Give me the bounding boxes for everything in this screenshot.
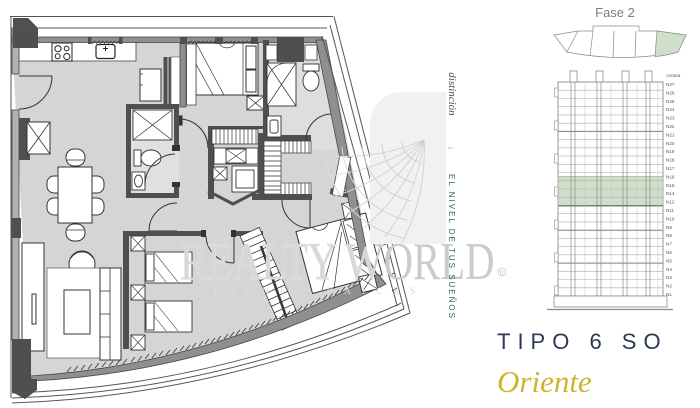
- svg-text:N22: N22: [666, 124, 675, 129]
- svg-text:N1: N1: [666, 292, 672, 297]
- svg-text:Azotea: Azotea: [666, 73, 681, 78]
- svg-text:N15: N15: [666, 183, 675, 188]
- svg-text:Oriente: Oriente: [497, 364, 592, 399]
- svg-text:N10: N10: [666, 216, 675, 221]
- svg-text:N14: N14: [666, 191, 675, 196]
- svg-text:N8: N8: [666, 233, 672, 238]
- svg-text:N6: N6: [666, 250, 672, 255]
- svg-text:N2: N2: [666, 284, 672, 289]
- svg-text:N19: N19: [666, 149, 675, 154]
- svg-text:N16: N16: [666, 174, 675, 179]
- svg-text:N5: N5: [666, 258, 672, 263]
- svg-text:N20: N20: [666, 141, 675, 146]
- svg-text:N17: N17: [666, 166, 675, 171]
- svg-text:N27: N27: [666, 82, 675, 87]
- svg-text:R: R: [500, 269, 505, 277]
- svg-text:¡: ¡: [447, 147, 456, 150]
- svg-text:N18: N18: [666, 158, 675, 163]
- svg-text:N21: N21: [666, 132, 675, 137]
- svg-text:distinción: distinción: [446, 72, 458, 116]
- svg-text:Fase 2: Fase 2: [595, 5, 635, 20]
- svg-text:N4: N4: [666, 267, 672, 272]
- svg-text:N3: N3: [666, 275, 672, 280]
- svg-text:N9: N9: [666, 225, 672, 230]
- svg-text:N7: N7: [666, 242, 672, 247]
- svg-text:N23: N23: [666, 116, 675, 121]
- svg-text:N11: N11: [666, 208, 675, 213]
- svg-text:TIPO 6 SO: TIPO 6 SO: [497, 329, 668, 354]
- svg-text:EL NIVEL DE TUS SUEÑOS: EL NIVEL DE TUS SUEÑOS: [447, 174, 456, 320]
- svg-text:N26: N26: [666, 90, 675, 95]
- svg-text:N24: N24: [666, 107, 675, 112]
- svg-text:N25: N25: [666, 99, 675, 104]
- svg-text:N12: N12: [666, 200, 675, 205]
